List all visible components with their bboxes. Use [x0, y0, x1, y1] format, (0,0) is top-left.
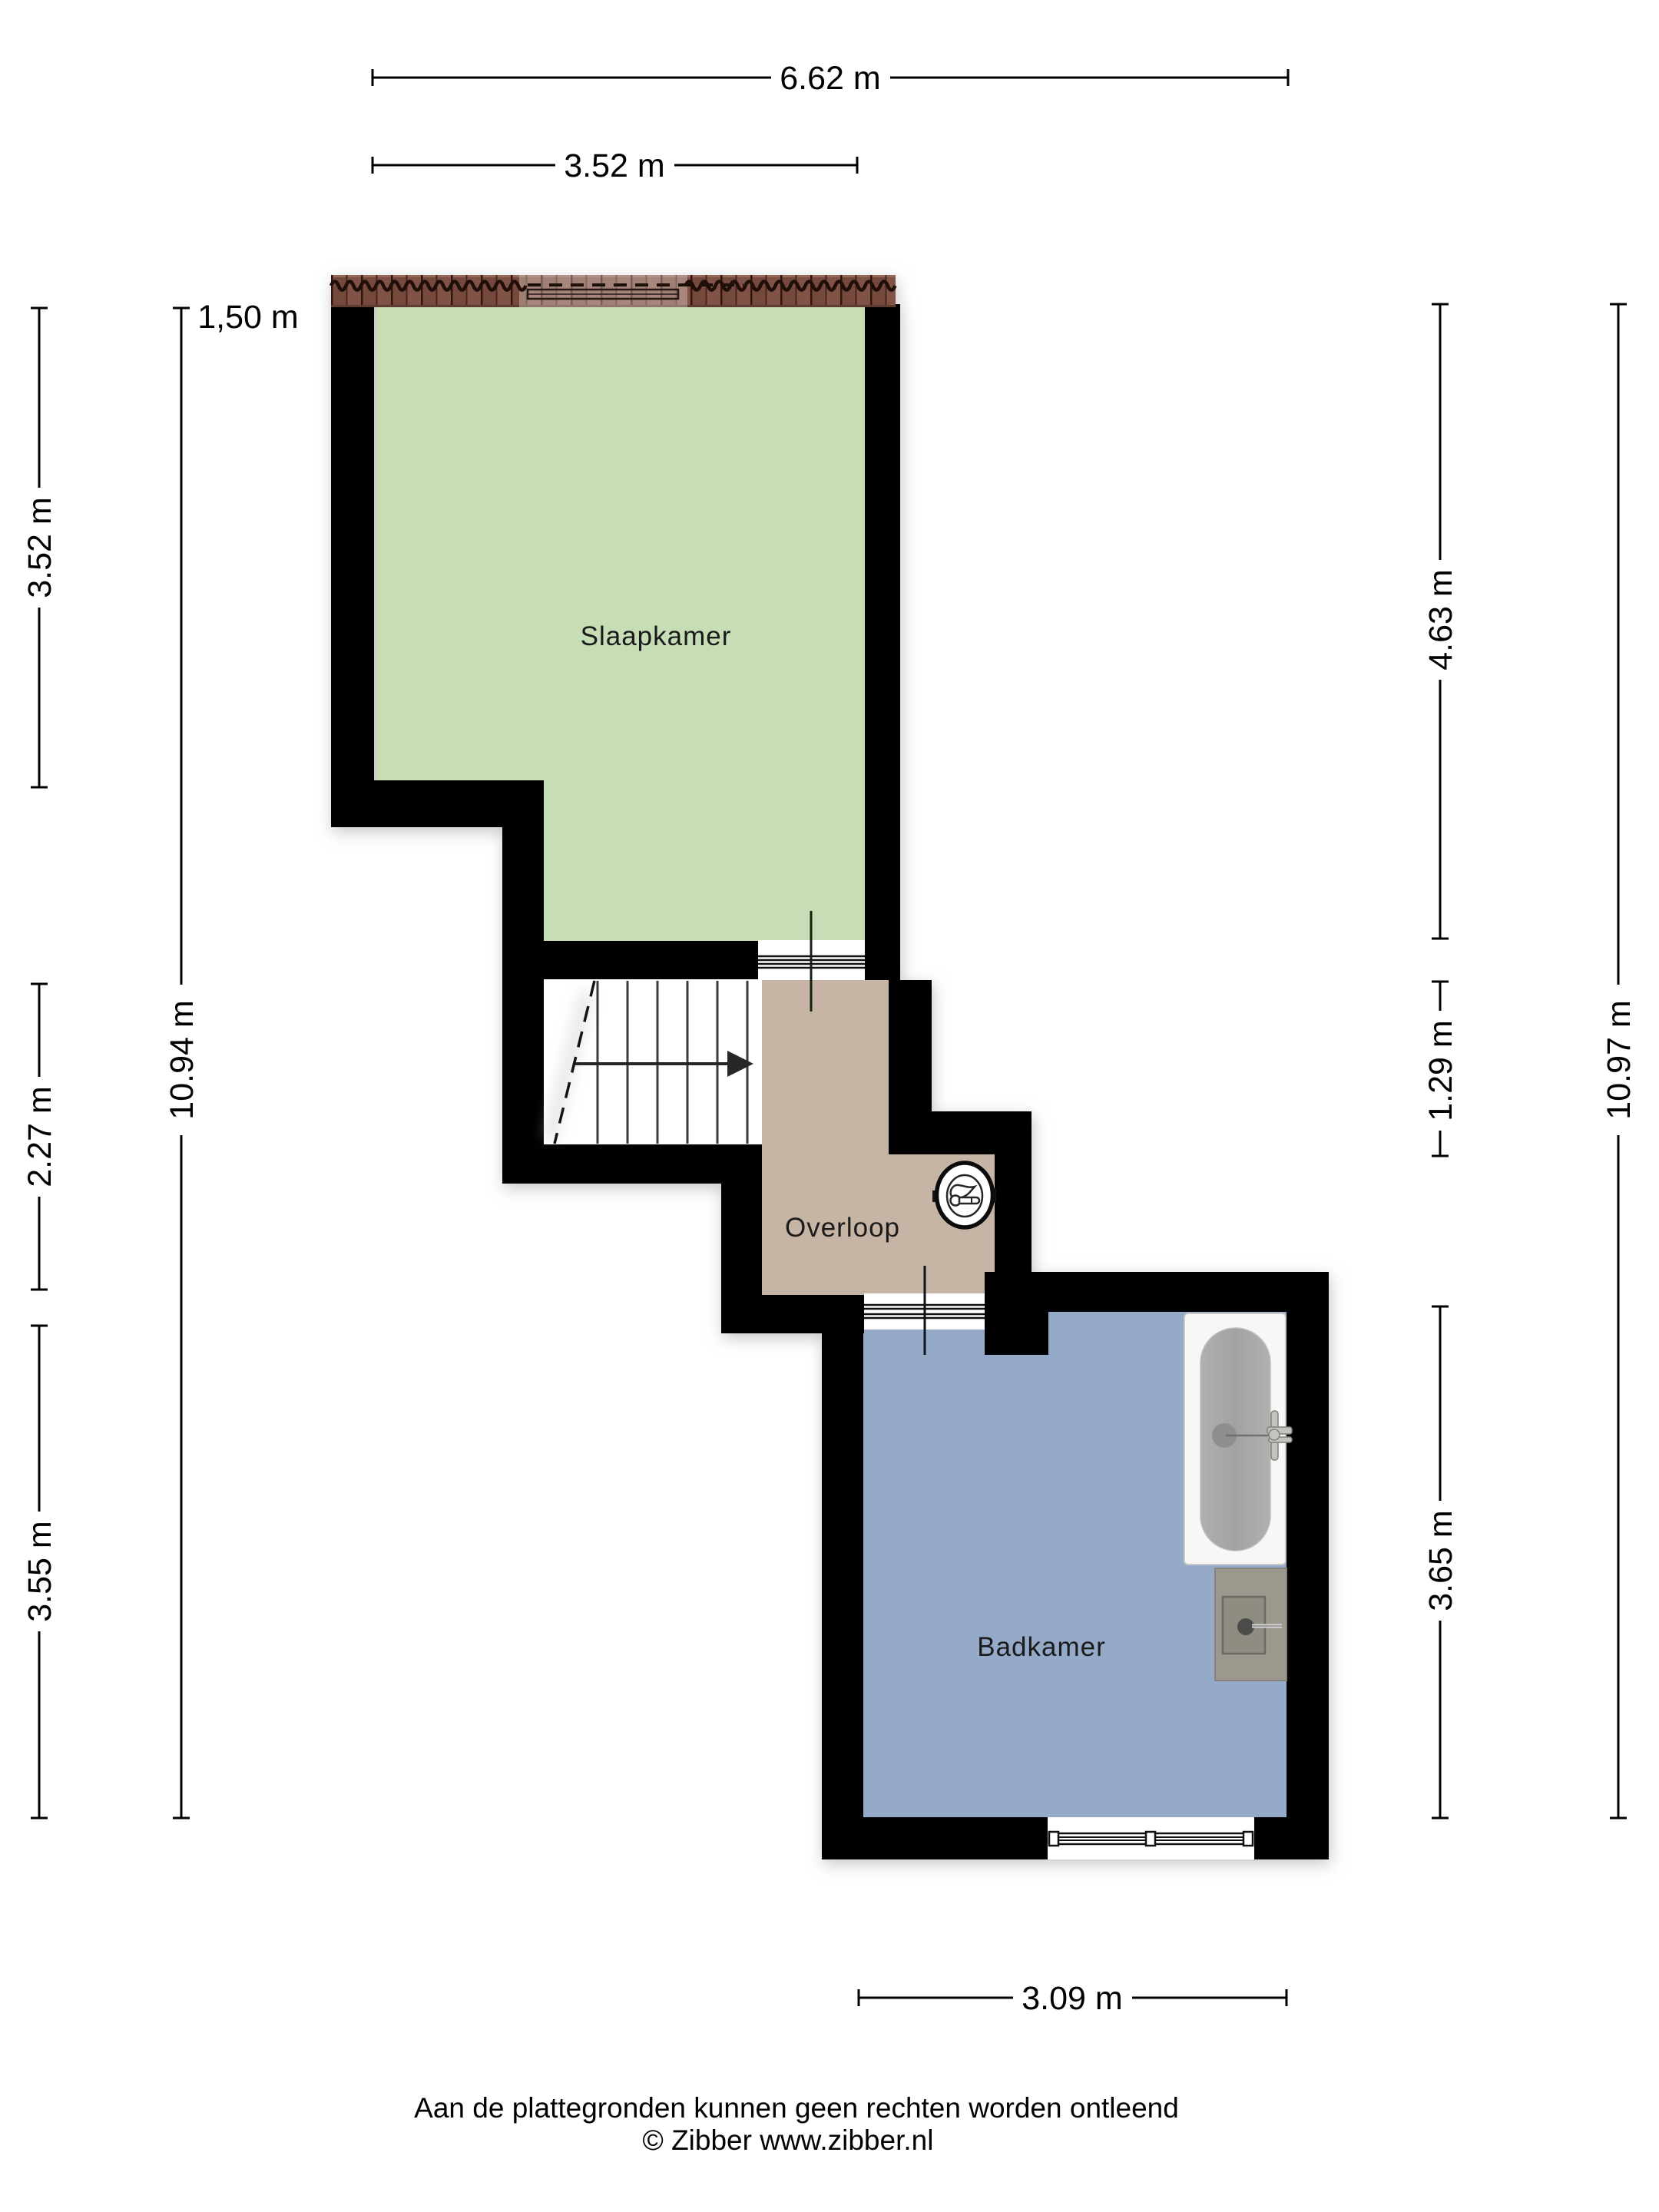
svg-text:6.62 m: 6.62 m — [780, 60, 880, 97]
svg-text:Aan de plattegronden kunnen ge: Aan de plattegronden kunnen geen rechten… — [414, 2092, 1179, 2124]
svg-text:3.55 m: 3.55 m — [22, 1521, 58, 1621]
svg-text:2.27 m: 2.27 m — [22, 1086, 58, 1187]
svg-text:10.94 m: 10.94 m — [164, 1000, 200, 1119]
svg-text:1,50 m: 1,50 m — [197, 299, 298, 336]
svg-text:3.65 m: 3.65 m — [1422, 1510, 1459, 1611]
svg-text:3.09 m: 3.09 m — [1022, 1980, 1122, 2017]
svg-text:3.52 m: 3.52 m — [564, 147, 664, 184]
svg-text:Badkamer: Badkamer — [977, 1632, 1106, 1662]
svg-text:Overloop: Overloop — [785, 1213, 900, 1243]
svg-text:4.63 m: 4.63 m — [1422, 569, 1459, 670]
svg-text:© Zibber www.zibber.nl: © Zibber www.zibber.nl — [643, 2124, 934, 2156]
svg-text:1.29 m: 1.29 m — [1422, 1020, 1459, 1121]
svg-text:10.97 m: 10.97 m — [1601, 1000, 1637, 1119]
svg-text:Slaapkamer: Slaapkamer — [581, 621, 732, 651]
svg-text:3.52 m: 3.52 m — [22, 497, 58, 598]
